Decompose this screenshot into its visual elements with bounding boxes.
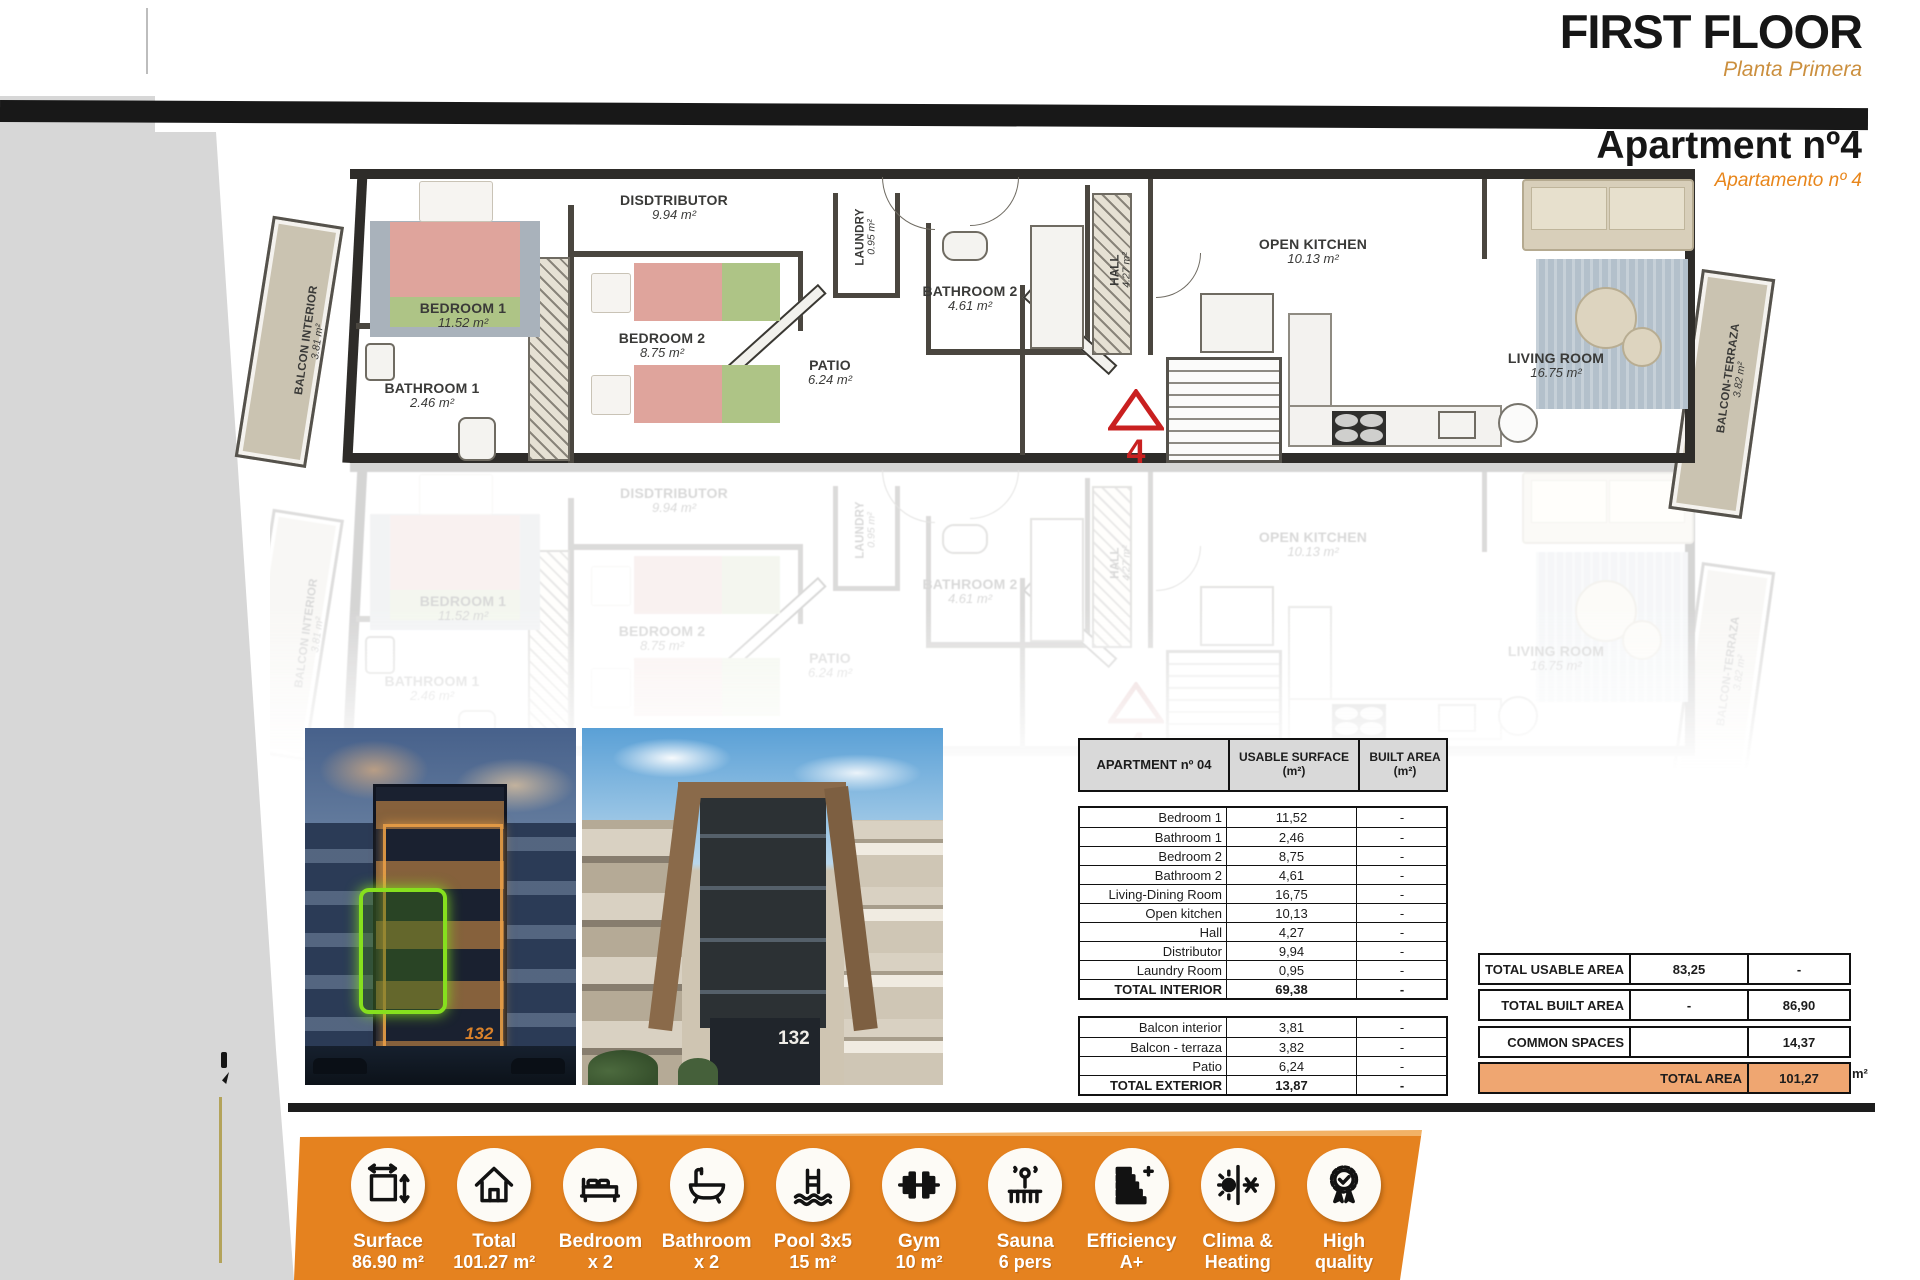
built-value: - bbox=[1356, 941, 1447, 960]
scan-artifact bbox=[146, 8, 148, 74]
usable-value: 8,75 bbox=[1226, 846, 1356, 865]
feature-value: 101.27 m² bbox=[448, 1252, 540, 1272]
wall bbox=[1482, 179, 1487, 259]
feature-label: Sauna bbox=[979, 1231, 1071, 1252]
coffee-table bbox=[1622, 327, 1662, 367]
row-label: Distributor bbox=[1080, 941, 1226, 960]
page-title: FIRST FLOOR bbox=[1560, 4, 1862, 59]
house-icon bbox=[457, 1148, 531, 1222]
room-area: 0.95 m² bbox=[866, 501, 878, 558]
feature-value: A+ bbox=[1086, 1252, 1178, 1272]
unit-number: 4 bbox=[1108, 433, 1164, 472]
usable-value: 16,75 bbox=[1226, 884, 1356, 903]
built-value: - bbox=[1356, 865, 1447, 884]
amenities-banner: Surface86.90 m²Total101.27 m²Bedroomx 2B… bbox=[290, 1126, 1430, 1280]
wall bbox=[1020, 578, 1025, 748]
row-label: Bathroom 2 bbox=[1080, 865, 1226, 884]
bedroom2-bed bbox=[588, 365, 780, 423]
usable-value: 6,24 bbox=[1226, 1056, 1356, 1075]
room-area: 6.24 m² bbox=[808, 372, 852, 387]
room-label: LIVING ROOM16.75 m² bbox=[1508, 643, 1604, 673]
room-area: 8.75 m² bbox=[619, 345, 706, 360]
room-label: BEDROOM 111.52 m² bbox=[420, 593, 507, 623]
surface-icon bbox=[351, 1148, 425, 1222]
area-table-row: Hall4,27- bbox=[1080, 922, 1446, 941]
bedroom2-bed bbox=[588, 263, 780, 321]
row-label: TOTAL EXTERIOR bbox=[1080, 1075, 1226, 1094]
usable-value: 2,46 bbox=[1226, 827, 1356, 846]
usable-value: 3,81 bbox=[1226, 1018, 1356, 1037]
room-area: 9.94 m² bbox=[620, 207, 728, 222]
feature-item: Pool 3x515 m² bbox=[767, 1148, 859, 1272]
feature-label: High bbox=[1298, 1231, 1390, 1252]
built-value: - bbox=[1356, 1075, 1447, 1094]
floor-plan-sheet: FIRST FLOOR Planta Primera Apartment nº4… bbox=[0, 0, 1920, 1280]
stairwell bbox=[1166, 357, 1282, 463]
wall bbox=[350, 169, 1695, 179]
room-area: 11.52 m² bbox=[420, 315, 507, 330]
row-label: Hall bbox=[1080, 922, 1226, 941]
kitchen-column bbox=[1498, 696, 1538, 736]
wall bbox=[798, 544, 803, 624]
room-area: 2.46 m² bbox=[384, 395, 479, 410]
feature-item: Gym10 m² bbox=[873, 1148, 965, 1272]
area-table-row: Balcon interior3,81- bbox=[1080, 1018, 1446, 1037]
room-label: PATIO6.24 m² bbox=[808, 357, 852, 387]
footer-divider-bar bbox=[288, 1103, 1875, 1112]
page-edge-line bbox=[219, 1097, 222, 1263]
area-table-row: Bedroom 111,52- bbox=[1080, 808, 1446, 827]
room-name: BEDROOM 1 bbox=[420, 593, 507, 609]
wall bbox=[1085, 185, 1090, 355]
wall bbox=[926, 349, 1088, 355]
room-name: BATHROOM 1 bbox=[384, 380, 479, 396]
living-sofa bbox=[1522, 179, 1694, 251]
area-table-row: TOTAL EXTERIOR13,87- bbox=[1080, 1075, 1446, 1094]
row-label: Balcon interior bbox=[1080, 1018, 1226, 1037]
area-table-header-cell: USABLE SURFACE (m²) bbox=[1228, 740, 1358, 790]
room-area: 10.13 m² bbox=[1259, 251, 1367, 266]
plants bbox=[678, 1058, 718, 1085]
feature-label: Bedroom bbox=[554, 1231, 646, 1252]
area-table-row: Open kitchen10,13- bbox=[1080, 903, 1446, 922]
summary-label: COMMON SPACES bbox=[1480, 1028, 1629, 1056]
kitchen-column bbox=[1498, 403, 1538, 443]
built-value: - bbox=[1356, 979, 1447, 998]
built-value: - bbox=[1356, 884, 1447, 903]
room-area: 16.75 m² bbox=[1508, 658, 1604, 673]
room-area: 0.95 m² bbox=[866, 208, 878, 265]
feature-item: EfficiencyA+ bbox=[1086, 1148, 1178, 1272]
feature-value: quality bbox=[1298, 1252, 1390, 1272]
summary-usable: - bbox=[1629, 991, 1747, 1019]
bathroom1-fixture bbox=[365, 636, 395, 674]
feature-value: 10 m² bbox=[873, 1252, 965, 1272]
room-label: HALL4.27 m² bbox=[1110, 252, 1133, 288]
usable-value: 3,82 bbox=[1226, 1037, 1356, 1056]
quality-icon bbox=[1307, 1148, 1381, 1222]
gym-icon bbox=[882, 1148, 956, 1222]
area-table-row: Living-Dining Room16,75- bbox=[1080, 884, 1446, 903]
kitchen-sink bbox=[1438, 411, 1476, 439]
room-area: 6.24 m² bbox=[808, 665, 852, 680]
feature-value: Heating bbox=[1192, 1252, 1284, 1272]
room-name: BATHROOM 2 bbox=[922, 576, 1017, 592]
usable-value: 9,94 bbox=[1226, 941, 1356, 960]
floor-plan: 4 BEDROOM 111.52 m²BATHROOM 12.46 m²BEDR… bbox=[270, 165, 1790, 505]
feature-label: Surface bbox=[342, 1231, 434, 1252]
room-name: DISDTRIBUTOR bbox=[620, 192, 728, 208]
area-table-header: APARTMENT nº 04 USABLE SURFACE (m²) BUIL… bbox=[1078, 738, 1448, 792]
room-label: PATIO6.24 m² bbox=[808, 650, 852, 680]
photo-night-render: 132 bbox=[305, 728, 576, 1085]
area-table-row: Distributor9,94- bbox=[1080, 941, 1446, 960]
feature-value: 86.90 m² bbox=[342, 1252, 434, 1272]
summary-usable: 83,25 bbox=[1629, 955, 1747, 983]
built-value: - bbox=[1356, 922, 1447, 941]
room-label: OPEN KITCHEN10.13 m² bbox=[1259, 236, 1367, 266]
room-area: 4.61 m² bbox=[922, 591, 1017, 606]
pool-icon bbox=[776, 1148, 850, 1222]
glass-core bbox=[700, 792, 826, 1028]
row-label: TOTAL INTERIOR bbox=[1080, 979, 1226, 998]
wood-band bbox=[678, 782, 846, 798]
room-name: PATIO bbox=[808, 357, 852, 373]
feature-item: Bedroomx 2 bbox=[554, 1148, 646, 1272]
room-name: LIVING ROOM bbox=[1508, 350, 1604, 366]
summary-built: 14,37 bbox=[1747, 1028, 1849, 1056]
header-divider-bar bbox=[0, 100, 1868, 130]
wall bbox=[1020, 285, 1025, 455]
usable-value: 13,87 bbox=[1226, 1075, 1356, 1094]
row-label: Living-Dining Room bbox=[1080, 884, 1226, 903]
balcony-interior bbox=[235, 216, 344, 468]
wall bbox=[572, 251, 802, 257]
feature-value: x 2 bbox=[661, 1252, 753, 1272]
feature-item: Clima &Heating bbox=[1192, 1148, 1284, 1272]
bathroom1-fixture bbox=[458, 417, 496, 461]
room-label: BEDROOM 28.75 m² bbox=[619, 623, 706, 653]
feature-label: Pool 3x5 bbox=[767, 1231, 859, 1252]
room-label: BEDROOM 111.52 m² bbox=[420, 300, 507, 330]
wall bbox=[833, 586, 900, 591]
area-table: APARTMENT nº 04 USABLE SURFACE (m²) BUIL… bbox=[1078, 738, 1448, 1096]
wall bbox=[833, 293, 900, 298]
area-table-row: Balcon - terraza3,82- bbox=[1080, 1037, 1446, 1056]
usable-value: 11,52 bbox=[1226, 808, 1356, 827]
usable-value: 69,38 bbox=[1226, 979, 1356, 998]
room-name: LIVING ROOM bbox=[1508, 643, 1604, 659]
usable-value: 0,95 bbox=[1226, 960, 1356, 979]
area-table-row: Laundry Room0,95- bbox=[1080, 960, 1446, 979]
feature-label: Clima & bbox=[1192, 1231, 1284, 1252]
room-label: BATHROOM 12.46 m² bbox=[384, 673, 479, 703]
built-value: - bbox=[1356, 808, 1447, 827]
bedroom2-bed bbox=[588, 556, 780, 614]
kitchen-sink bbox=[1438, 704, 1476, 732]
wall bbox=[572, 544, 802, 550]
built-value: - bbox=[1356, 903, 1447, 922]
total-area-row: TOTAL AREA101,27 bbox=[1478, 1062, 1851, 1094]
scan-artifact bbox=[221, 1052, 227, 1068]
total-area-unit: m² bbox=[1852, 1066, 1868, 1081]
built-value: - bbox=[1356, 1056, 1447, 1075]
room-name: BATHROOM 2 bbox=[922, 283, 1017, 299]
room-name: BEDROOM 2 bbox=[619, 623, 706, 639]
room-label: BATHROOM 24.61 m² bbox=[922, 576, 1017, 606]
bathroom2-shower bbox=[1030, 518, 1084, 642]
summary-row: TOTAL BUILT AREA-86,90 bbox=[1478, 989, 1851, 1021]
room-label: DISDTRIBUTOR9.94 m² bbox=[620, 192, 728, 222]
page-backdrop bbox=[0, 96, 300, 1280]
feature-label: Bathroom bbox=[661, 1231, 753, 1252]
car bbox=[313, 1058, 367, 1074]
built-value: - bbox=[1356, 1018, 1447, 1037]
apartment-title: Apartment nº4 bbox=[1596, 124, 1862, 168]
room-name: OPEN KITCHEN bbox=[1259, 529, 1367, 545]
row-label: Patio bbox=[1080, 1056, 1226, 1075]
plants bbox=[588, 1050, 658, 1085]
feature-item: Highquality bbox=[1298, 1148, 1390, 1272]
room-name: BEDROOM 1 bbox=[420, 300, 507, 316]
room-name: BEDROOM 2 bbox=[619, 330, 706, 346]
built-value: - bbox=[1356, 960, 1447, 979]
sauna-icon bbox=[988, 1148, 1062, 1222]
bedroom2-bed bbox=[588, 658, 780, 716]
room-label: BATHROOM 24.61 m² bbox=[922, 283, 1017, 313]
bathroom2-shower bbox=[1030, 225, 1084, 349]
room-area: 11.52 m² bbox=[420, 608, 507, 623]
bathroom1-fixture bbox=[365, 343, 395, 381]
area-table-row: Bathroom 24,61- bbox=[1080, 865, 1446, 884]
row-label: Bathroom 1 bbox=[1080, 827, 1226, 846]
feature-label: Total bbox=[448, 1231, 540, 1252]
summary-built: - bbox=[1747, 955, 1849, 983]
bath-icon bbox=[670, 1148, 744, 1222]
usable-value: 4,61 bbox=[1226, 865, 1356, 884]
feature-label: Gym bbox=[873, 1231, 965, 1252]
area-table-header-cell: APARTMENT nº 04 bbox=[1080, 740, 1228, 790]
bed-icon bbox=[563, 1148, 637, 1222]
row-label: Balcon - terraza bbox=[1080, 1037, 1226, 1056]
apartment-highlight bbox=[359, 888, 447, 1014]
room-area: 16.75 m² bbox=[1508, 365, 1604, 380]
room-area: 2.46 m² bbox=[384, 688, 479, 703]
area-table-row: Bedroom 28,75- bbox=[1080, 846, 1446, 865]
room-area: 4.61 m² bbox=[922, 298, 1017, 313]
room-name: OPEN KITCHEN bbox=[1259, 236, 1367, 252]
bathroom2-toilet bbox=[942, 231, 988, 261]
room-label: OPEN KITCHEN10.13 m² bbox=[1259, 529, 1367, 559]
built-value: - bbox=[1356, 846, 1447, 865]
building-number: 132 bbox=[778, 1028, 810, 1050]
car bbox=[511, 1058, 565, 1074]
usable-value: 4,27 bbox=[1226, 922, 1356, 941]
summary-row: TOTAL USABLE AREA83,25- bbox=[1478, 953, 1851, 985]
feature-item: Total101.27 m² bbox=[448, 1148, 540, 1272]
summary-usable bbox=[1629, 1028, 1747, 1056]
unit-marker: 4 bbox=[1108, 389, 1164, 472]
built-value: - bbox=[1356, 827, 1447, 846]
summary-label: TOTAL BUILT AREA bbox=[1480, 991, 1629, 1019]
photo-day-render: 132 bbox=[582, 728, 943, 1085]
wall bbox=[926, 642, 1088, 648]
interior-rows: Bedroom 111,52-Bathroom 12,46-Bedroom 28… bbox=[1078, 806, 1448, 1000]
wall bbox=[798, 251, 803, 331]
room-label: HALL4.27 m² bbox=[1110, 545, 1133, 581]
wall bbox=[833, 193, 838, 297]
stove-icon bbox=[1332, 704, 1386, 738]
room-label: LAUNDRY0.95 m² bbox=[855, 501, 878, 558]
summary-built: 86,90 bbox=[1747, 991, 1849, 1019]
room-label: LAUNDRY0.95 m² bbox=[855, 208, 878, 265]
feature-item: Bathroomx 2 bbox=[661, 1148, 753, 1272]
feature-list: Surface86.90 m²Total101.27 m²Bedroomx 2B… bbox=[290, 1148, 1430, 1272]
room-label: LIVING ROOM16.75 m² bbox=[1508, 350, 1604, 380]
row-label: Laundry Room bbox=[1080, 960, 1226, 979]
coffee-table bbox=[1622, 620, 1662, 660]
total-area-value: 101,27 bbox=[1747, 1064, 1849, 1092]
row-label: Bedroom 1 bbox=[1080, 808, 1226, 827]
row-label: Bedroom 2 bbox=[1080, 846, 1226, 865]
summary-label: TOTAL USABLE AREA bbox=[1480, 955, 1629, 983]
feature-value: x 2 bbox=[554, 1252, 646, 1272]
building-number: 132 bbox=[465, 1024, 493, 1044]
area-table-row: Patio6,24- bbox=[1080, 1056, 1446, 1075]
room-label: BEDROOM 28.75 m² bbox=[619, 330, 706, 360]
wall bbox=[1148, 179, 1153, 355]
page-subtitle: Planta Primera bbox=[1723, 58, 1862, 82]
area-table-row: Bathroom 12,46- bbox=[1080, 827, 1446, 846]
bathroom2-toilet bbox=[942, 524, 988, 554]
area-table-header-cell: BUILT AREA (m²) bbox=[1358, 740, 1450, 790]
efficiency-icon bbox=[1095, 1148, 1169, 1222]
row-label: Open kitchen bbox=[1080, 903, 1226, 922]
usable-value: 10,13 bbox=[1226, 903, 1356, 922]
total-area-label: TOTAL AREA bbox=[1480, 1064, 1747, 1092]
elevator bbox=[1200, 586, 1274, 646]
feature-item: Surface86.90 m² bbox=[342, 1148, 434, 1272]
stove-icon bbox=[1332, 411, 1386, 445]
area-table-row: TOTAL INTERIOR69,38- bbox=[1080, 979, 1446, 998]
feature-item: Sauna6 pers bbox=[979, 1148, 1071, 1272]
room-label: BATHROOM 12.46 m² bbox=[384, 380, 479, 410]
feature-value: 15 m² bbox=[767, 1252, 859, 1272]
clima-icon bbox=[1201, 1148, 1275, 1222]
room-area: 10.13 m² bbox=[1259, 544, 1367, 559]
room-name: BATHROOM 1 bbox=[384, 673, 479, 689]
built-value: - bbox=[1356, 1037, 1447, 1056]
room-area: 8.75 m² bbox=[619, 638, 706, 653]
summary-row: COMMON SPACES14,37 bbox=[1478, 1026, 1851, 1058]
feature-value: 6 pers bbox=[979, 1252, 1071, 1272]
room-area: 4.27 m² bbox=[1121, 545, 1133, 581]
elevator bbox=[1200, 293, 1274, 353]
exterior-rows: Balcon interior3,81-Balcon - terraza3,82… bbox=[1078, 1016, 1448, 1096]
feature-label: Efficiency bbox=[1086, 1231, 1178, 1252]
cloud bbox=[612, 738, 732, 778]
room-area: 4.27 m² bbox=[1121, 252, 1133, 288]
room-name: PATIO bbox=[808, 650, 852, 666]
